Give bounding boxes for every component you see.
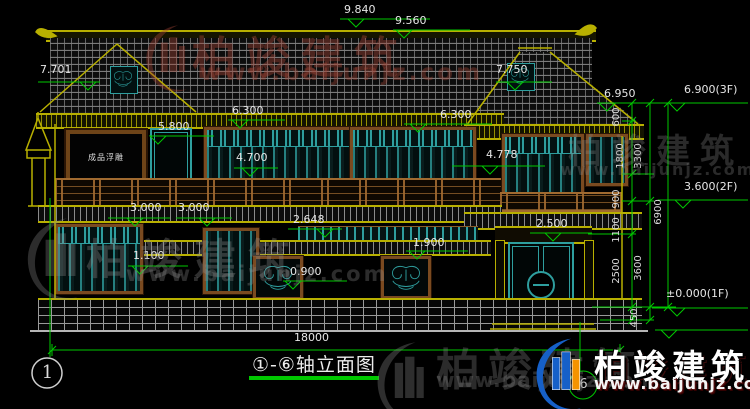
- elevation-label: 1.900: [413, 237, 445, 249]
- watermark-url: www.baijunjz.com: [560, 160, 750, 179]
- elevation-label: 6.300: [232, 105, 264, 117]
- title-underline: [249, 376, 379, 380]
- elevation-label: 6.300: [440, 109, 472, 121]
- watermark-url: www.baijunjz.com: [200, 60, 483, 86]
- watermark-url: www.baijunjz.com: [126, 262, 389, 286]
- elevation-label: 7.701: [40, 64, 72, 76]
- elevation-label: 4.700: [236, 152, 268, 164]
- elevation-label: ±0.000(1F): [666, 288, 729, 300]
- elevation-label: 3.000: [178, 202, 210, 214]
- vertical-dim-label: 2500: [611, 249, 623, 293]
- drawing-title: ①-⑥轴立面图: [252, 350, 376, 377]
- elevation-label: 3.000: [130, 202, 162, 214]
- elevation-label: 5.800: [158, 121, 190, 133]
- vertical-dim-label: 3600: [633, 246, 645, 290]
- elevation-label: 6.900(3F): [684, 84, 737, 96]
- vertical-dim-label: 6900: [653, 190, 665, 234]
- elevation-label: 2.500: [536, 218, 568, 230]
- elevation-label: 2.648: [293, 214, 325, 226]
- brand-logo-icon: [20, 210, 84, 310]
- elevation-label: 3.600(2F): [684, 181, 737, 193]
- cad-elevation-drawing: 成品浮雕: [0, 0, 750, 409]
- elevation-label: 7.750: [496, 64, 528, 76]
- brand-logo-icon: [140, 20, 192, 98]
- brand-logo-icon: [370, 335, 432, 409]
- axis-bubble-left: 1: [41, 362, 54, 383]
- brand-logo-color-icon: [525, 333, 591, 409]
- elevation-label: 9.840: [344, 4, 376, 16]
- overall-width-label: 18000: [294, 332, 329, 344]
- watermark-url: www.baijunjz.com: [594, 374, 750, 393]
- vertical-dim-label: 1100: [611, 208, 623, 252]
- elevation-label: 4.778: [486, 149, 518, 161]
